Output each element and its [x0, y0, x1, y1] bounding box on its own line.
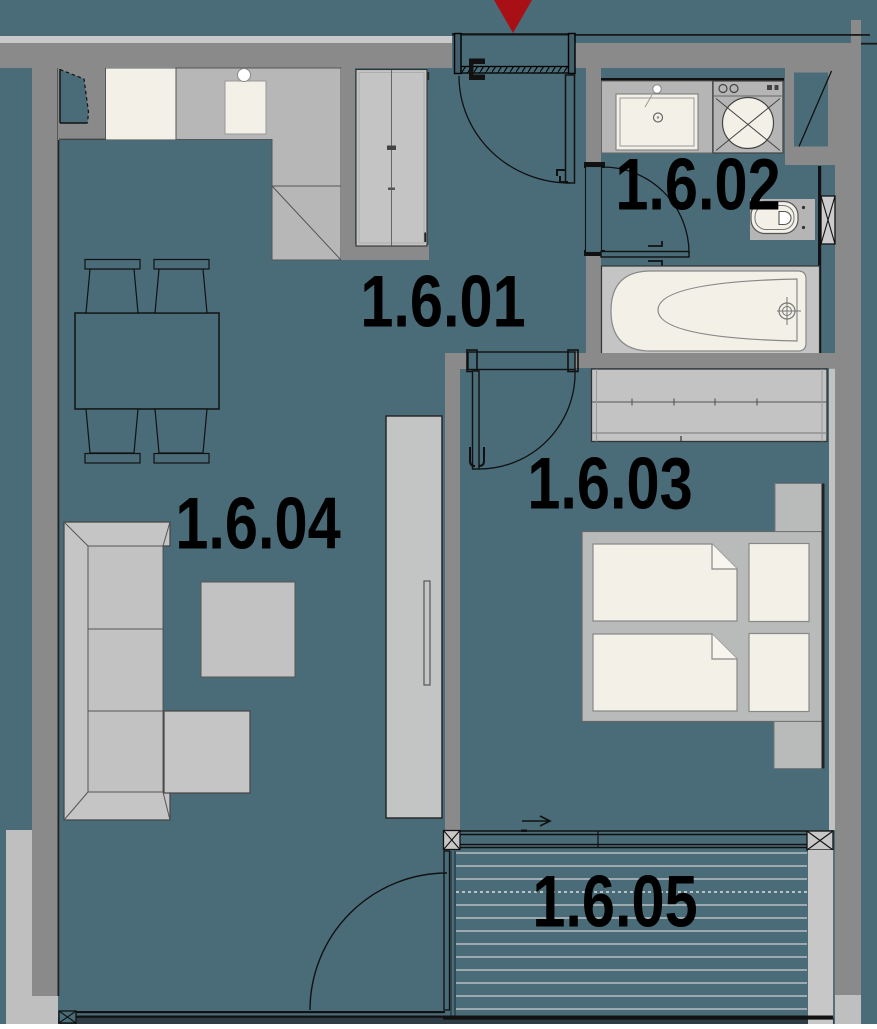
- svg-text:1.6.05: 1.6.05: [532, 862, 697, 943]
- svg-text:1.6.04: 1.6.04: [175, 484, 340, 565]
- svg-text:1.6.02: 1.6.02: [615, 145, 780, 226]
- svg-text:1.6.01: 1.6.01: [360, 262, 525, 343]
- svg-text:1.6.03: 1.6.03: [527, 444, 692, 525]
